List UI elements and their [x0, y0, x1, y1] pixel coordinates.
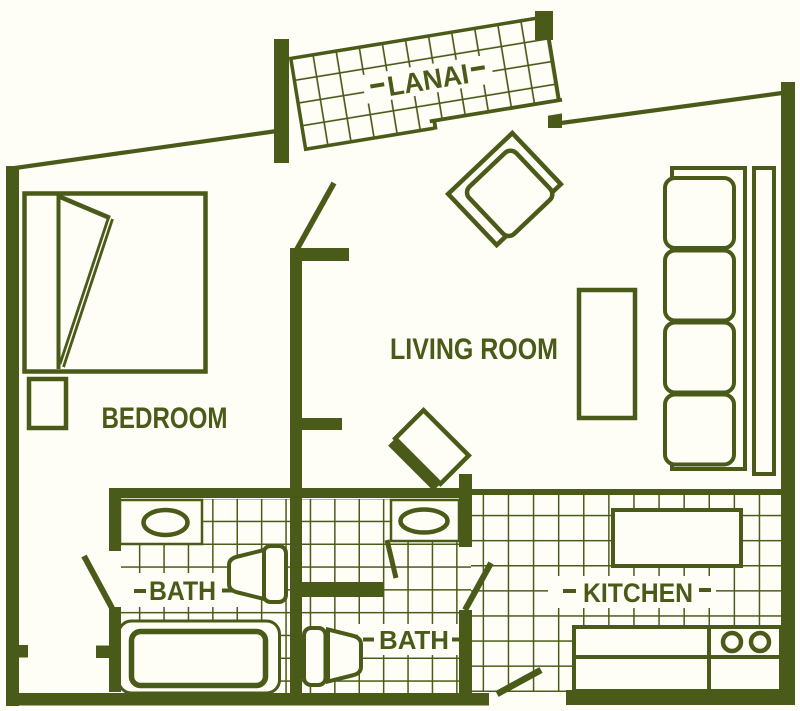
svg-text:BATH: BATH	[379, 625, 449, 655]
svg-text:BEDROOM: BEDROOM	[102, 402, 228, 435]
svg-text:BATH: BATH	[149, 576, 216, 606]
svg-text:KITCHEN: KITCHEN	[583, 578, 693, 608]
svg-text:LIVING ROOM: LIVING ROOM	[390, 333, 558, 366]
